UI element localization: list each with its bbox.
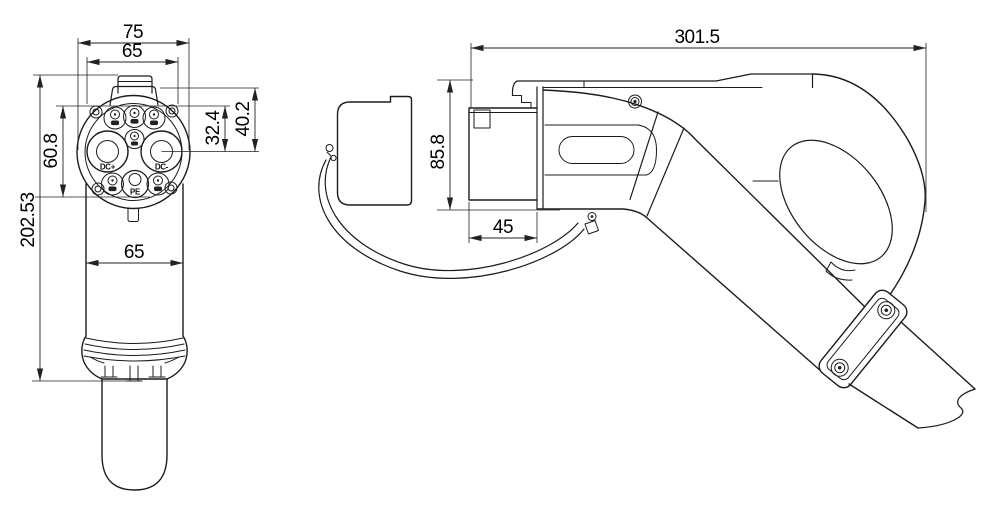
dim-pin-row-to-axis: 32.4 (203, 110, 224, 146)
dust-cap (326, 97, 412, 206)
connector-body (82, 184, 187, 490)
cable-clamp (816, 287, 911, 392)
grip-seam (630, 112, 684, 216)
shell-grip-upper-edge (543, 90, 866, 308)
loop-notch (826, 262, 855, 280)
cable-sleeve (102, 379, 167, 490)
front-view: DC+ DC- (18, 22, 259, 490)
body-bottom-grip-lower-edge (537, 209, 830, 379)
dim-face-width: 65 (122, 41, 142, 62)
oval-slot (559, 137, 634, 164)
drawing-canvas: DC+ DC- (0, 0, 1004, 513)
locking-collar (82, 336, 187, 381)
gun-lanyard-anchor (585, 213, 599, 235)
break-line (918, 389, 975, 428)
cap-lanyard-anchor (326, 145, 336, 161)
pe-label: PE (130, 188, 141, 197)
technical-drawing-page: { "colors": { "background": "#ffffff", "… (0, 0, 1004, 513)
joint-flange (537, 87, 543, 209)
dim-side-overall-length: 301.5 (674, 27, 719, 48)
gun-body (469, 74, 975, 428)
side-view: 301.5 85.8 45 (319, 27, 975, 428)
coupler-nozzle (469, 108, 537, 200)
latch-button (118, 76, 152, 93)
screw-icon (629, 95, 642, 108)
handle-hole (757, 119, 915, 285)
dim-body-width: 65 (124, 242, 144, 263)
dim-latch-to-axis: 40.2 (233, 102, 254, 137)
dim-head-height: 85.8 (428, 135, 449, 170)
connector-face: DC+ DC- (77, 76, 190, 222)
dc-minus-label: DC- (155, 163, 169, 172)
dim-pin-field-height: 60.8 (41, 134, 62, 169)
dim-flange-width: 75 (123, 22, 143, 43)
side-view-dimensions: 301.5 85.8 45 (428, 27, 926, 243)
dim-coupler-depth: 45 (493, 217, 513, 238)
dim-overall-length: 202.53 (18, 192, 39, 247)
bottom-stem (128, 208, 139, 222)
handle-loop (753, 74, 925, 296)
dc-plus-label: DC+ (100, 163, 116, 172)
